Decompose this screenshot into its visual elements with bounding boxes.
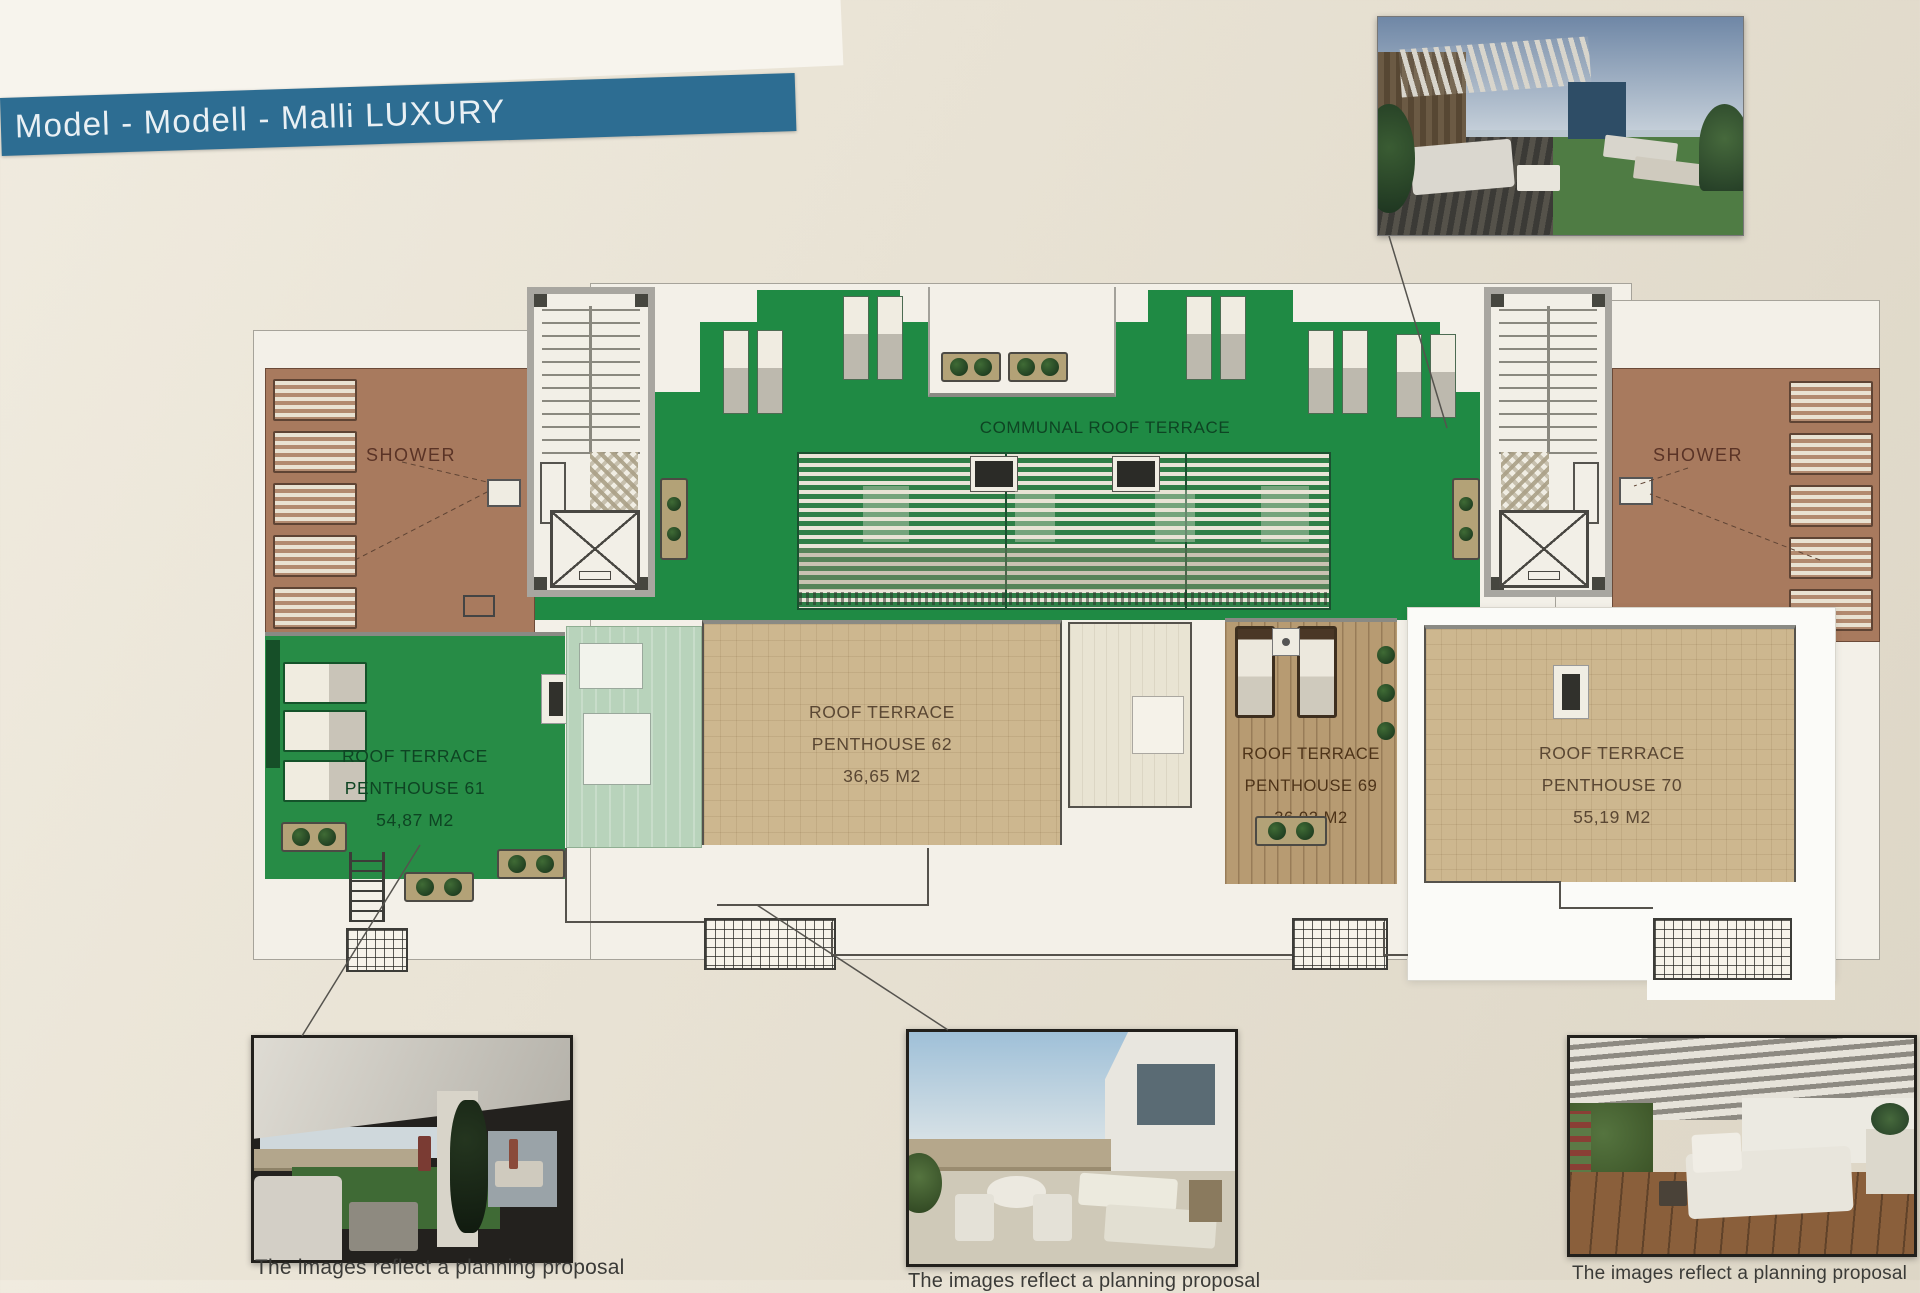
shower-label-left: SHOWER <box>366 445 456 466</box>
photo-penthouse-terrace-2 <box>906 1029 1238 1267</box>
pergola-patch <box>1261 486 1309 542</box>
penthouse-70-terrace: ROOF TERRACE PENTHOUSE 70 55,19 M2 <box>1424 625 1796 882</box>
render-chair <box>955 1194 994 1240</box>
planter-box <box>1008 352 1068 382</box>
communal-terrace-upper-right <box>1105 322 1440 397</box>
right-shower-terrace: SHOWER <box>1612 368 1880 642</box>
render-planter <box>1866 1129 1914 1194</box>
render-table <box>1517 165 1561 191</box>
plant-icon <box>1377 722 1395 740</box>
photo-penthouse-terrace-1 <box>251 1035 573 1263</box>
stairwell-left <box>527 287 655 597</box>
plant-icon <box>1377 684 1395 702</box>
render-window <box>1137 1064 1215 1124</box>
trellis-hatch <box>346 928 408 972</box>
sunbed-icon <box>273 535 357 577</box>
caption-right: The images reflect a planning proposal <box>1572 1263 1907 1285</box>
pergola-patch <box>1015 490 1055 542</box>
title-banner-text: Model - Modell - Malli LUXURY <box>0 92 506 146</box>
render-table <box>349 1202 419 1251</box>
render-chair <box>1033 1194 1072 1240</box>
sunbed-icon <box>283 662 367 704</box>
render-canopy <box>251 1035 573 1142</box>
trellis-hatch <box>1653 918 1792 980</box>
penthouse-70-label: ROOF TERRACE PENTHOUSE 70 55,19 M2 <box>1492 737 1732 833</box>
stairwell-right <box>1484 287 1612 597</box>
trellis-hatch <box>704 918 836 970</box>
terrace-door <box>1553 665 1589 719</box>
caption-middle: The images reflect a planning proposal <box>908 1270 1260 1293</box>
render-daybed <box>1685 1146 1853 1219</box>
photo-penthouse-terrace-3 <box>1567 1035 1917 1257</box>
shower-tray-left <box>487 479 521 507</box>
penthouse-62-label: ROOF TERRACE PENTHOUSE 62 36,65 M2 <box>762 696 1002 792</box>
sunbed-icon <box>1789 433 1873 475</box>
skylight-zone <box>566 626 702 848</box>
planter-box <box>1452 478 1480 560</box>
sunbed-pair <box>1308 330 1368 419</box>
scanned-floor-plan-sheet: { "banner": { "text": "Model - Modell - … <box>0 0 1920 1280</box>
shower-tray-right <box>1619 477 1653 505</box>
vent-icon <box>1272 628 1300 656</box>
lounger-icon <box>1235 626 1275 718</box>
sunbed-pair <box>843 296 903 385</box>
lounger-icon <box>1297 626 1337 718</box>
sunbed-pair <box>1186 296 1246 385</box>
render-bright-patch <box>488 1131 558 1206</box>
roof-hatch-icon <box>1113 457 1159 491</box>
render-sofa <box>254 1176 342 1263</box>
stairs-icon <box>1499 306 1597 454</box>
pergola-patch <box>1155 490 1195 542</box>
penthouse-62-terrace: ROOF TERRACE PENTHOUSE 62 36,65 M2 <box>702 620 1062 845</box>
plant-icon <box>1377 646 1395 664</box>
trellis-strip <box>349 852 385 922</box>
roof-hatch-icon <box>971 457 1017 491</box>
elevator-right <box>1499 510 1589 588</box>
skylight-panel <box>583 713 651 785</box>
penthouse-61-terrace: ROOF TERRACE PENTHOUSE 61 54,87 M2 <box>265 632 565 879</box>
skylight-panel <box>1132 696 1184 754</box>
trellis-hatch <box>1292 918 1388 970</box>
render-side-table <box>1659 1181 1687 1207</box>
planter-box <box>497 849 565 879</box>
sunbed-icon <box>273 587 357 629</box>
render-cabinet <box>1189 1180 1222 1222</box>
planter-box <box>941 352 1001 382</box>
sunbed-icon <box>1789 381 1873 423</box>
planter-box <box>404 872 474 902</box>
caption-left: The images reflect a planning proposal <box>255 1256 624 1280</box>
penthouse-69-terrace: ROOF TERRACE PENTHOUSE 69 36,02 M2 <box>1225 618 1397 884</box>
elevator-left <box>550 510 640 588</box>
render-sofa <box>1409 139 1515 196</box>
service-skylight-zone <box>1068 622 1192 808</box>
sunbed-icon <box>1789 485 1873 527</box>
pergola-edge-strip <box>799 592 1329 605</box>
render-structure <box>1568 82 1626 139</box>
sunbed-icon <box>273 483 357 525</box>
photo-communal-terrace-render <box>1377 16 1744 236</box>
communal-pergola <box>797 452 1331 610</box>
sunbed-icon <box>273 431 357 473</box>
render-plant <box>1699 104 1744 191</box>
render-city <box>909 1139 1111 1171</box>
skylight-panel <box>579 643 643 689</box>
render-person <box>418 1136 431 1172</box>
shower-label-right: SHOWER <box>1653 445 1743 466</box>
planter-box <box>281 822 347 852</box>
communal-terrace-label: COMMUNAL ROOF TERRACE <box>940 412 1270 444</box>
sunbed-pair <box>723 330 783 419</box>
planter-box <box>1255 816 1327 846</box>
stairs-icon <box>542 306 640 454</box>
hedge-strip <box>266 640 280 768</box>
sunbed-icon <box>273 379 357 421</box>
pergola-patch <box>863 486 909 542</box>
sunbed-pair <box>1396 334 1456 423</box>
left-shower-terrace: SHOWER <box>265 368 535 640</box>
render-plant <box>450 1100 488 1233</box>
pergola-shadow-band <box>799 548 1329 590</box>
roof-fixture <box>463 595 495 617</box>
planter-box <box>660 478 688 560</box>
sunbed-icon <box>1789 537 1873 579</box>
